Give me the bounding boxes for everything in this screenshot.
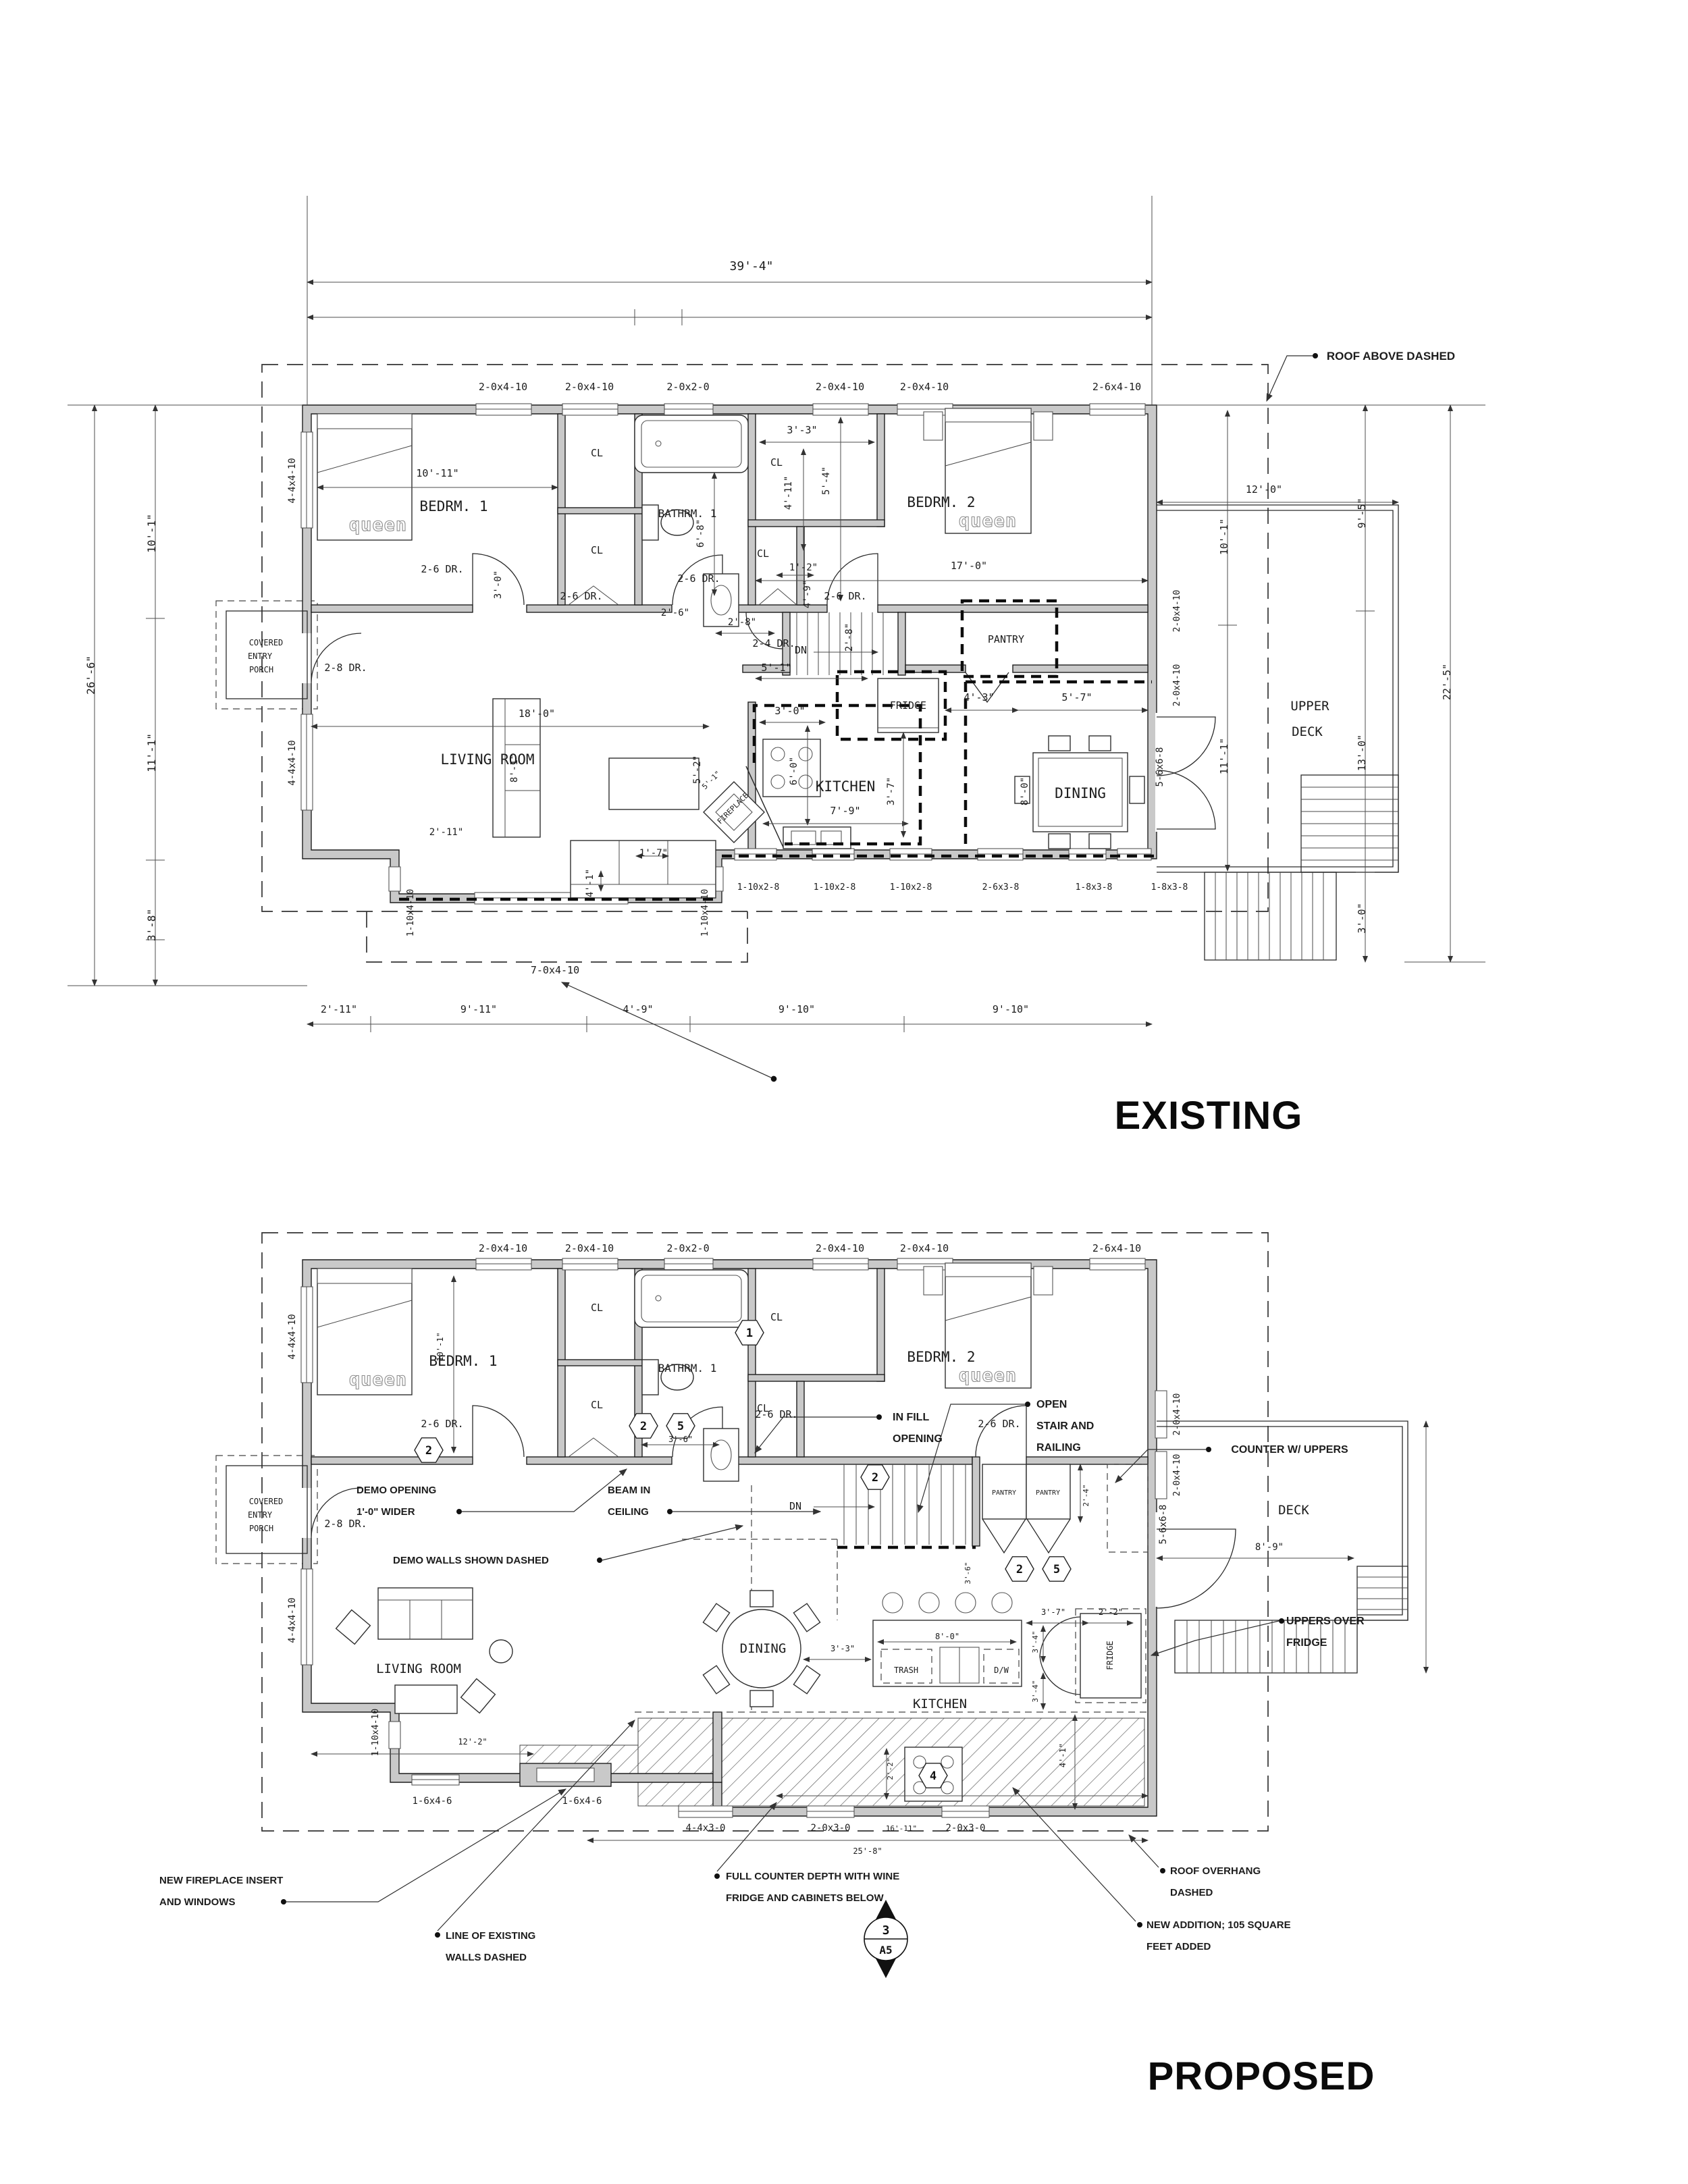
plan-label: 2-0x3-0 bbox=[945, 1823, 985, 1834]
plan-label: BEDRM. 2 bbox=[907, 494, 975, 510]
plan-label: 4-4x4-10 bbox=[287, 1314, 298, 1359]
bathtub bbox=[635, 1270, 748, 1327]
plan-label: 4-4x3-0 bbox=[685, 1823, 725, 1834]
plan-label: 3'-0" bbox=[493, 570, 504, 599]
plan-label: 5'-1" bbox=[700, 769, 722, 791]
plan-label: IN FILL bbox=[893, 1412, 929, 1423]
plan-label: 5'-2" bbox=[692, 755, 703, 784]
plan-label: 9'-11" bbox=[460, 1003, 497, 1015]
plan-label: 1'-7" bbox=[639, 848, 668, 859]
plan-label: BATHRM. 1 bbox=[658, 507, 717, 520]
plan-label: 2-0x4-10 bbox=[816, 1242, 864, 1254]
new-fireplace-insert bbox=[520, 1763, 611, 1786]
plan-label: COVERED bbox=[249, 638, 284, 647]
plan-label: 2'-4" bbox=[1082, 1484, 1090, 1506]
plan-label: DINING bbox=[740, 1641, 787, 1656]
plan-label: CL bbox=[757, 548, 769, 560]
plan-label: 4'-9" bbox=[802, 580, 813, 608]
plan-label: CL bbox=[770, 1311, 783, 1323]
plan-label: PANTRY bbox=[1036, 1489, 1060, 1497]
plan-label: 12'-2" bbox=[458, 1737, 487, 1747]
plan-label: LINE OF EXISTING bbox=[446, 1930, 535, 1942]
plan-label: DEMO WALLS SHOWN DASHED bbox=[393, 1555, 549, 1566]
plan-label: 4'-1" bbox=[585, 869, 596, 897]
counter-with-uppers-dashed bbox=[1107, 1464, 1148, 1552]
plan-label: 4'-11" bbox=[783, 476, 794, 510]
plan-label: 11'-1" bbox=[1218, 738, 1230, 774]
plan-label: FEET ADDED bbox=[1146, 1941, 1211, 1952]
plan-label: 12'-0" bbox=[1246, 483, 1282, 496]
plan-label: 2'-8" bbox=[844, 623, 855, 651]
plan-label: 2-6x4-10 bbox=[1092, 1242, 1141, 1254]
plan-label: 1-10x4-10 bbox=[406, 889, 416, 936]
plan-label: ROOF OVERHANG bbox=[1170, 1865, 1261, 1877]
plan-label: 3'-6" bbox=[668, 1435, 693, 1444]
plan-label: 5'-7" bbox=[1061, 691, 1092, 703]
plan-label: BEDRM. 1 bbox=[419, 498, 487, 514]
plan-label: 13'-0" bbox=[1356, 735, 1368, 771]
plan-label: 2-8 DR. bbox=[324, 1518, 367, 1530]
plan-label: ROOF ABOVE DASHED bbox=[1327, 350, 1455, 363]
plan-label: 9'-10" bbox=[993, 1003, 1029, 1015]
plan-label: 1-10x2-8 bbox=[814, 882, 856, 893]
proposed-title: PROPOSED bbox=[1148, 2054, 1375, 2098]
plan-label: 22'-5" bbox=[1441, 664, 1453, 700]
plan-label: 1-8x3-8 bbox=[1076, 882, 1113, 893]
plan-label: PORCH bbox=[249, 1524, 273, 1533]
plan-label: 2'-11" bbox=[321, 1003, 357, 1015]
plan-label: 9'-5" bbox=[1356, 498, 1368, 528]
keynote-number: 4 bbox=[930, 1769, 937, 1783]
plan-label: D/W bbox=[994, 1666, 1009, 1675]
plan-label: 3'-4" bbox=[1031, 1680, 1040, 1702]
plan-label: CEILING bbox=[608, 1506, 649, 1518]
plan-label: 11'-1" bbox=[145, 733, 158, 772]
plan-label: DINING bbox=[1055, 785, 1106, 801]
plan-label: 7'-9" bbox=[830, 805, 860, 817]
plan-label: 2'-6" bbox=[661, 608, 689, 618]
plan-label: FRIDGE AND CABINETS BELOW bbox=[726, 1892, 884, 1904]
plan-label: 2-6 DR. bbox=[677, 572, 720, 585]
existing-fixtures bbox=[317, 408, 1144, 898]
open-stairs bbox=[814, 1464, 966, 1545]
plan-label: 3'-4" bbox=[1031, 1630, 1040, 1653]
plan-label: BEDRM. 2 bbox=[907, 1349, 975, 1365]
plan-label: ENTRY bbox=[248, 1510, 273, 1520]
plan-label: 8'-1" bbox=[509, 754, 520, 782]
plan-label: FRIDGE bbox=[890, 699, 926, 712]
bathtub bbox=[635, 415, 748, 473]
detail-marker-part: 3 bbox=[882, 1923, 890, 1938]
plan-label: DN bbox=[795, 644, 807, 656]
plan-label: 2-6 DR. bbox=[421, 563, 463, 575]
plan-label: 2-6 DR. bbox=[824, 590, 866, 602]
plan-label: OPEN bbox=[1036, 1399, 1067, 1410]
proposed-porch bbox=[226, 1466, 307, 1553]
plan-label: 18'-0" bbox=[519, 708, 555, 720]
plan-label: 2'-11" bbox=[429, 827, 464, 838]
plan-label: queen bbox=[959, 1365, 1017, 1386]
plan-label: STAIR AND bbox=[1036, 1420, 1094, 1432]
plan-label: NEW ADDITION; 105 SQUARE bbox=[1146, 1919, 1291, 1931]
plan-label: 4-4x4-10 bbox=[287, 458, 298, 503]
keynote-number: 2 bbox=[1016, 1563, 1023, 1576]
plan-label: 5'-4" bbox=[821, 467, 832, 495]
keynote-number: 2 bbox=[425, 1444, 432, 1458]
plan-label: DECK bbox=[1278, 1503, 1309, 1518]
plan-label: 2-8 DR. bbox=[324, 662, 367, 674]
plan-label: 2-0x3-0 bbox=[810, 1823, 850, 1834]
plan-label: 5'-1" bbox=[761, 662, 791, 674]
plan-label: PANTRY bbox=[988, 633, 1024, 645]
plan-label: 2-0x4-10 bbox=[816, 381, 864, 393]
plan-label: 4-4x4-10 bbox=[287, 740, 298, 785]
plan-label: LIVING ROOM bbox=[376, 1661, 461, 1676]
plan-label: queen bbox=[349, 514, 407, 535]
existing-title: EXISTING bbox=[1115, 1094, 1303, 1138]
plan-label: 2-6 DR. bbox=[978, 1418, 1020, 1430]
plan-label: 2-0x4-10 bbox=[479, 1242, 527, 1254]
plan-label: 1'-2" bbox=[789, 562, 818, 573]
plan-label: 8'-9" bbox=[1255, 1542, 1284, 1553]
plan-label: BATHRM. 1 bbox=[658, 1362, 717, 1375]
keynote-number: 2 bbox=[872, 1471, 878, 1485]
plan-label: FRIDGE bbox=[1286, 1637, 1327, 1649]
plan-label: DEMO OPENING bbox=[357, 1485, 436, 1496]
plan-label: 2-6x4-10 bbox=[1092, 381, 1141, 393]
plan-label: 3'-7" bbox=[1041, 1607, 1065, 1617]
plan-label: 10'-1" bbox=[145, 514, 158, 553]
plan-label: 4-4x4-10 bbox=[287, 1597, 298, 1643]
plan-label: 10'-11" bbox=[416, 467, 458, 479]
plan-label: UPPERS OVER bbox=[1286, 1616, 1365, 1627]
plan-label: LIVING ROOM bbox=[440, 751, 534, 768]
plan-label: 2-0x4-10 bbox=[1172, 1454, 1182, 1497]
plan-label: 5-6x6-8 bbox=[1155, 747, 1165, 787]
upper-deck bbox=[1157, 505, 1398, 960]
plan-label: DN bbox=[789, 1500, 801, 1512]
plan-label: FULL COUNTER DEPTH WITH WINE bbox=[726, 1871, 899, 1882]
plan-label: 16'-11" bbox=[886, 1824, 917, 1833]
plan-label: ENTRY bbox=[248, 651, 273, 661]
plan-label: 1'-0" WIDER bbox=[357, 1506, 415, 1518]
plan-label: 3'-3" bbox=[787, 424, 817, 436]
plan-label: 1-10x4-10 bbox=[371, 1709, 381, 1756]
plan-label: 3'-3" bbox=[830, 1644, 855, 1653]
floor-plan-canvas: 39'-4"2-0x4-102-0x4-102-0x2-02-0x4-102-0… bbox=[0, 0, 1688, 2184]
plan-label: 2-6 DR. bbox=[421, 1418, 463, 1430]
plan-label: 6'-0" bbox=[789, 757, 799, 785]
plan-label: CL bbox=[770, 456, 783, 469]
plan-label: 2'-2" bbox=[1099, 1607, 1123, 1617]
plan-label: PORCH bbox=[249, 665, 273, 674]
plan-label: 2-4 DR. bbox=[752, 637, 795, 649]
plan-label: 1-10x2-8 bbox=[890, 882, 932, 893]
proposed-plan: 12522254 3A5 2-0x4-102-0x4-102-0x2-02-0x… bbox=[159, 1233, 1426, 2098]
plan-label: 2-0x4-10 bbox=[900, 381, 949, 393]
plan-label: COVERED bbox=[249, 1497, 284, 1506]
plan-label: NEW FIREPLACE INSERT bbox=[159, 1875, 283, 1886]
coffee-table bbox=[609, 758, 699, 809]
plan-label: PANTRY bbox=[992, 1489, 1016, 1497]
drawing-sheet: 39'-4"2-0x4-102-0x4-102-0x2-02-0x4-102-0… bbox=[0, 0, 1688, 2184]
existing-dimensions bbox=[68, 196, 1485, 1032]
plan-label: 2-0x4-10 bbox=[479, 381, 527, 393]
plan-label: UPPER bbox=[1290, 699, 1329, 714]
stairs-down bbox=[797, 612, 883, 675]
plan-label: 10'-1" bbox=[436, 1332, 445, 1361]
plan-label: 2-0x4-10 bbox=[900, 1242, 949, 1254]
plan-label: 3'-0" bbox=[1356, 903, 1368, 933]
detail-marker-part: A5 bbox=[879, 1944, 892, 1956]
plan-label: 2-0x4-10 bbox=[1172, 664, 1182, 707]
existing-labels: 39'-4"2-0x4-102-0x4-102-0x2-02-0x4-102-0… bbox=[84, 259, 1455, 1015]
living-furniture bbox=[336, 1588, 512, 1713]
plan-label: FRIDGE bbox=[1105, 1641, 1115, 1670]
plan-label: CL bbox=[757, 1402, 769, 1414]
plan-label: 3'-7" bbox=[886, 777, 897, 805]
proposed-keynotes: 12522254 bbox=[415, 1321, 1071, 1788]
plan-label: 39'-4" bbox=[729, 259, 773, 273]
keynote-number: 2 bbox=[640, 1420, 647, 1433]
plan-label: 1-6x4-6 bbox=[412, 1796, 452, 1807]
plan-label: OPENING bbox=[893, 1433, 943, 1445]
plan-label: RAILING bbox=[1036, 1442, 1081, 1454]
plan-label: 4'-3" bbox=[964, 691, 994, 703]
plan-label: 2-0x4-10 bbox=[1172, 1393, 1182, 1436]
plan-label: CL bbox=[591, 447, 603, 459]
plan-label: 1-10x4-10 bbox=[700, 889, 710, 936]
plan-label: 1-10x2-8 bbox=[737, 882, 780, 893]
plan-label: 2-0x2-0 bbox=[666, 381, 709, 393]
plan-label: COUNTER W/ UPPERS bbox=[1231, 1444, 1348, 1456]
plan-label: CL bbox=[591, 1399, 603, 1411]
plan-label: 9'-10" bbox=[779, 1003, 815, 1015]
bath-sink bbox=[704, 1429, 739, 1481]
plan-label: 3'-6" bbox=[964, 1562, 972, 1584]
plan-label: 3'-8" bbox=[145, 909, 158, 941]
plan-label: 6'-8" bbox=[695, 519, 706, 548]
plan-label: 2-0x2-0 bbox=[666, 1242, 709, 1254]
pantry-cabinets bbox=[982, 1464, 1070, 1553]
plan-label: CL bbox=[591, 1302, 603, 1314]
plan-label: 5-6x6-8 bbox=[1158, 1504, 1169, 1544]
plan-label: 2-6 DR. bbox=[560, 590, 602, 602]
plan-label: KITCHEN bbox=[913, 1697, 967, 1711]
plan-label: WALLS DASHED bbox=[446, 1952, 527, 1963]
plan-label: 2-0x4-10 bbox=[565, 1242, 614, 1254]
plan-label: 26'-6" bbox=[84, 656, 97, 695]
plan-label: TRASH bbox=[894, 1666, 918, 1675]
plan-label: 2'-2" bbox=[886, 1757, 895, 1780]
plan-label: 4'-9" bbox=[623, 1003, 653, 1015]
plan-label: AND WINDOWS bbox=[159, 1896, 236, 1908]
plan-label: 4'-1" bbox=[1058, 1743, 1067, 1767]
plan-label: queen bbox=[959, 510, 1017, 531]
plan-label: 10'-1" bbox=[1218, 518, 1230, 555]
plan-label: KITCHEN bbox=[816, 778, 876, 795]
plan-label: BEAM IN bbox=[608, 1485, 650, 1496]
keynote-number: 1 bbox=[746, 1327, 753, 1340]
plan-label: DECK bbox=[1292, 724, 1323, 739]
plan-label: 17'-0" bbox=[951, 560, 987, 572]
keynote-number: 5 bbox=[1053, 1563, 1060, 1576]
plan-label: 8'-0" bbox=[935, 1632, 959, 1641]
plan-label: 1-8x3-8 bbox=[1151, 882, 1188, 893]
keynote-number: 5 bbox=[677, 1420, 684, 1433]
plan-label: 2'-8" bbox=[728, 617, 756, 628]
plan-label: 3'-0" bbox=[774, 705, 805, 717]
plan-label: 25'-8" bbox=[853, 1846, 882, 1856]
plan-label: 1-6x4-6 bbox=[562, 1796, 602, 1807]
plan-label: 2-0x4-10 bbox=[1172, 590, 1182, 633]
detail-marker-3-A5: 3A5 bbox=[864, 1900, 907, 1978]
plan-label: 2-0x4-10 bbox=[565, 381, 614, 393]
plan-label: DASHED bbox=[1170, 1887, 1213, 1898]
plan-label: 2-6x3-8 bbox=[982, 882, 1020, 893]
existing-plan: 39'-4"2-0x4-102-0x4-102-0x2-02-0x4-102-0… bbox=[68, 196, 1485, 1138]
plan-label: 7-0x4-10 bbox=[531, 964, 579, 976]
plan-label: 8'-0" bbox=[1020, 777, 1030, 805]
plan-label: CL bbox=[591, 544, 603, 556]
plan-label: queen bbox=[349, 1369, 407, 1390]
